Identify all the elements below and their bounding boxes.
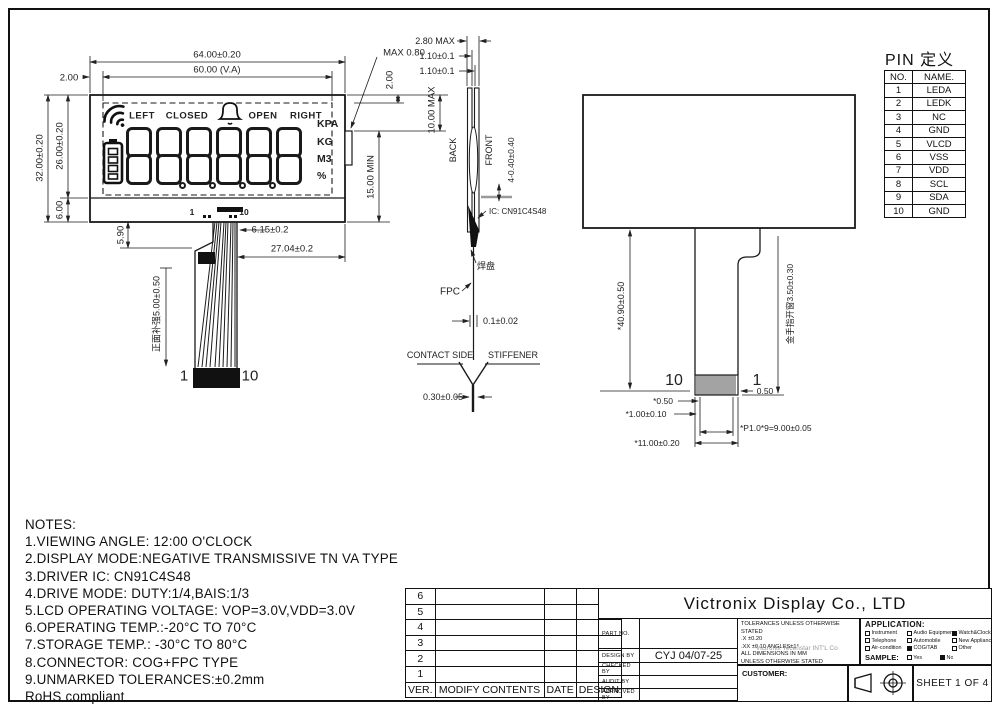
checkbox-icon [907, 655, 912, 660]
app-option: Yes [907, 655, 922, 661]
app-option: Air-condition [865, 645, 907, 651]
lcd-label-left: LEFT [129, 111, 155, 122]
app-option: Audio Equipment [907, 630, 952, 636]
dim-right-top: 2.00 [385, 71, 396, 90]
note-line: 6.OPERATING TEMP.:-20°C TO 70°C [25, 619, 398, 636]
pin-row: 5VLCD [885, 137, 966, 150]
dim-total-thickness: 2.80 MAX [415, 36, 455, 46]
sheet-number: SHEET 1 OF 4 [916, 678, 989, 689]
checkbox-icon [952, 638, 957, 643]
pin-row: 3NC [885, 111, 966, 124]
dim-stiffener-thickness: 0.30±0.05 [423, 392, 463, 402]
dim-connector-width: 6.15±0.2 [252, 225, 289, 236]
dim-height-outer: 32.00±0.20 [35, 134, 46, 181]
lcd-label-open: OPEN [249, 111, 278, 122]
projection-symbol-cell [848, 665, 913, 702]
rear-pin-left: 10 [665, 372, 683, 390]
revision-row: 4 [406, 620, 622, 636]
segment-digit [186, 127, 212, 185]
dim-right-max: 10.00 MAX [427, 87, 438, 134]
note-line: 1.VIEWING ANGLE: 12:00 O'CLOCK [25, 533, 398, 550]
tolerance-line: .X ±0.20 [741, 636, 859, 644]
checkbox-icon [952, 646, 957, 651]
audit-by-label: AUDIT BY [598, 675, 640, 689]
decimal-point [179, 182, 186, 189]
tolerance-line: TOLERANCES UNLESS OTHERWISE STATED [741, 621, 859, 636]
dim-ic-bump: 4-0.40±0.40 [506, 137, 516, 182]
app-option: Telephone [865, 638, 907, 644]
segment-digit [246, 127, 272, 185]
label-stiffener: STIFFENER [488, 350, 538, 360]
pin-table-title: PIN 定义 [885, 46, 954, 70]
checkbox-icon [940, 655, 945, 660]
label-back: BACK [448, 138, 458, 163]
sheet-number-cell: SHEET 1 OF 4 [913, 665, 992, 702]
note-line: 7.STORAGE TEMP.: -30°C TO 80°C [25, 636, 398, 653]
app-option: No [940, 655, 953, 661]
note-line: 3.DRIVER IC: CN91C4S48 [25, 568, 398, 585]
decimal-point [239, 182, 246, 189]
dim-pin-width: *1.00±0.10 [625, 409, 666, 419]
label-ic: IC: CN91C4S48 [489, 207, 546, 216]
pin-row: 4GND [885, 124, 966, 137]
decimal-point [209, 182, 216, 189]
design-by-value: CYJ 04/07-25 [639, 648, 738, 663]
application-block: APPLICATION: InstrumentAudio EquipmentWa… [860, 618, 992, 665]
dim-fpc-to-edge: 27.04±0.2 [271, 244, 313, 255]
label-fpc: FPC [440, 287, 460, 298]
app-option: New Appliance [952, 638, 992, 644]
dim-pitch: *P1.0*9=9.00±0.05 [740, 423, 812, 433]
dim-right-min: 15.00 MIN [366, 155, 377, 199]
watermark: Victronix Tecenstar INT'L Co [756, 645, 838, 653]
note-line: 5.LCD OPERATING VOLTAGE: VOP=3.0V,VDD=3.… [25, 602, 398, 619]
dim-width-outer: 64.00±0.20 [193, 50, 240, 61]
part-no-label: PART NO. [598, 618, 640, 649]
dim-left-margin: 2.00 [60, 73, 79, 84]
application-title: APPLICATION: [865, 620, 991, 629]
segment-digit [156, 127, 182, 185]
sample-label: SAMPLE: [865, 653, 899, 662]
note-line: 9.UNMARKED TOLERANCES:±0.2mm [25, 671, 398, 688]
pin-row: 9SDA [885, 191, 966, 204]
pin-row: 1LEDA [885, 84, 966, 97]
app-option: Watch&Clock [952, 630, 992, 636]
dim-glass2: 1.10±0.1 [420, 66, 455, 76]
dim-bottom-strip: 6.00 [55, 201, 66, 220]
pin-row: 7VDD [885, 164, 966, 177]
note-line: 4.DRIVE MODE: DUTY:1/4,BAIS:1/3 [25, 585, 398, 602]
segment-digit [126, 127, 152, 185]
pin-row: 10GND [885, 204, 966, 217]
decimal-point [269, 182, 276, 189]
dim-pin-margin: *0.50 [653, 396, 673, 406]
revision-row: 3 [406, 635, 622, 651]
pin-row: 6VSS [885, 151, 966, 164]
design-by-label: DESIGN BY [598, 648, 640, 663]
dim-front-stiffener: 正面补强5.00±0.50 [150, 276, 163, 352]
checkbox-icon [907, 631, 912, 636]
lcd-label-closed: CLOSED [166, 111, 209, 122]
label-front: FRONT [484, 135, 494, 166]
dim-fpc-drop: 5.90 [116, 226, 127, 245]
lcd-unit-kpa: KPA [317, 118, 338, 130]
dim-connector-width-rear: *11.00±0.20 [634, 438, 679, 448]
dim-edge-margin: 0.50 [757, 386, 774, 396]
dim-fpc-thickness: 0.1±0.02 [483, 316, 518, 326]
pin-mark-last: 10 [239, 207, 248, 217]
dim-glass1: 1.10±0.1 [420, 51, 455, 61]
drawing-sheet: 64.00±0.20 60.00 (V.A) 2.00 32.00±0.20 2… [0, 0, 1000, 719]
dim-finger-window: 金手指开窗3.50±0.30 [784, 264, 796, 344]
checkbox-icon [907, 638, 912, 643]
checkbox-icon [907, 646, 912, 651]
label-contact-side: CONTACT SIDE [407, 350, 473, 360]
pin-definition-table: NO. NAME. 1LEDA2LEDK3NC4GND5VLCD6VSS7VDD… [884, 70, 966, 218]
audit-by-value [639, 675, 738, 689]
part-no-value [639, 618, 738, 649]
dim-tail-length: *40.90±0.50 [616, 282, 626, 330]
lcd-unit-m3: M3 [317, 153, 332, 165]
pin-row: 2LEDK [885, 97, 966, 110]
checkbox-icon [865, 631, 870, 636]
segment-digit [276, 127, 302, 185]
pin-col-name: NAME. [913, 71, 966, 84]
pin-col-no: NO. [885, 71, 913, 84]
customer-label: CUSTOMER: [742, 669, 787, 678]
notes-title: NOTES: [25, 516, 398, 533]
dim-width-va: 60.00 (V.A) [193, 65, 240, 76]
segment-digit [216, 127, 242, 185]
revision-table: 654321VER.MODIFY CONTENTSDATEDESIGN [405, 588, 622, 698]
company-title: Victronix Display Co., LTD [598, 588, 992, 619]
pin-mark-first: 1 [190, 207, 195, 217]
app-option: Other [952, 645, 992, 651]
pin-row: 8SCL [885, 178, 966, 191]
third-angle-projection-icon [849, 666, 912, 700]
seven-segment-digits [126, 127, 302, 185]
app-option: Instrument [865, 630, 907, 636]
note-line: 8.CONNECTOR: COG+FPC TYPE [25, 654, 398, 671]
tail-pin-left: 1 [180, 368, 188, 385]
label-solder-pad: 焊盘 [477, 259, 495, 272]
pin-table-header: NO. NAME. [885, 71, 966, 84]
checked-by-label: CHECKED BY [598, 662, 640, 676]
app-option: Automobile [907, 638, 952, 644]
revision-row: 6 [406, 589, 622, 605]
notes-block: NOTES: 1.VIEWING ANGLE: 12:00 O'CLOCK2.D… [25, 516, 398, 705]
approved-by-label: APPROVED BY [598, 688, 640, 702]
checked-by-value [639, 662, 738, 676]
checkbox-icon [952, 631, 957, 636]
checkbox-icon [865, 646, 870, 651]
tail-pin-right: 10 [242, 368, 259, 385]
approved-by-value [639, 688, 738, 702]
checkbox-icon [865, 638, 870, 643]
revision-row: 2 [406, 651, 622, 667]
revision-header: VER.MODIFY CONTENTSDATEDESIGN [406, 682, 622, 698]
customer-cell: CUSTOMER: [737, 665, 848, 702]
dim-height-va: 26.00±0.20 [55, 122, 66, 169]
revision-row: 5 [406, 604, 622, 620]
revision-row: 1 [406, 666, 622, 682]
lcd-unit-kg: KG [317, 136, 333, 148]
note-line: RoHS compliant [25, 688, 398, 705]
lcd-unit-percent: % [317, 170, 326, 182]
note-line: 2.DISPLAY MODE:NEGATIVE TRANSMISSIVE TN … [25, 550, 398, 567]
app-option: COG/TAB [907, 645, 952, 651]
tolerance-block: TOLERANCES UNLESS OTHERWISE STATED .X ±0… [737, 618, 860, 665]
